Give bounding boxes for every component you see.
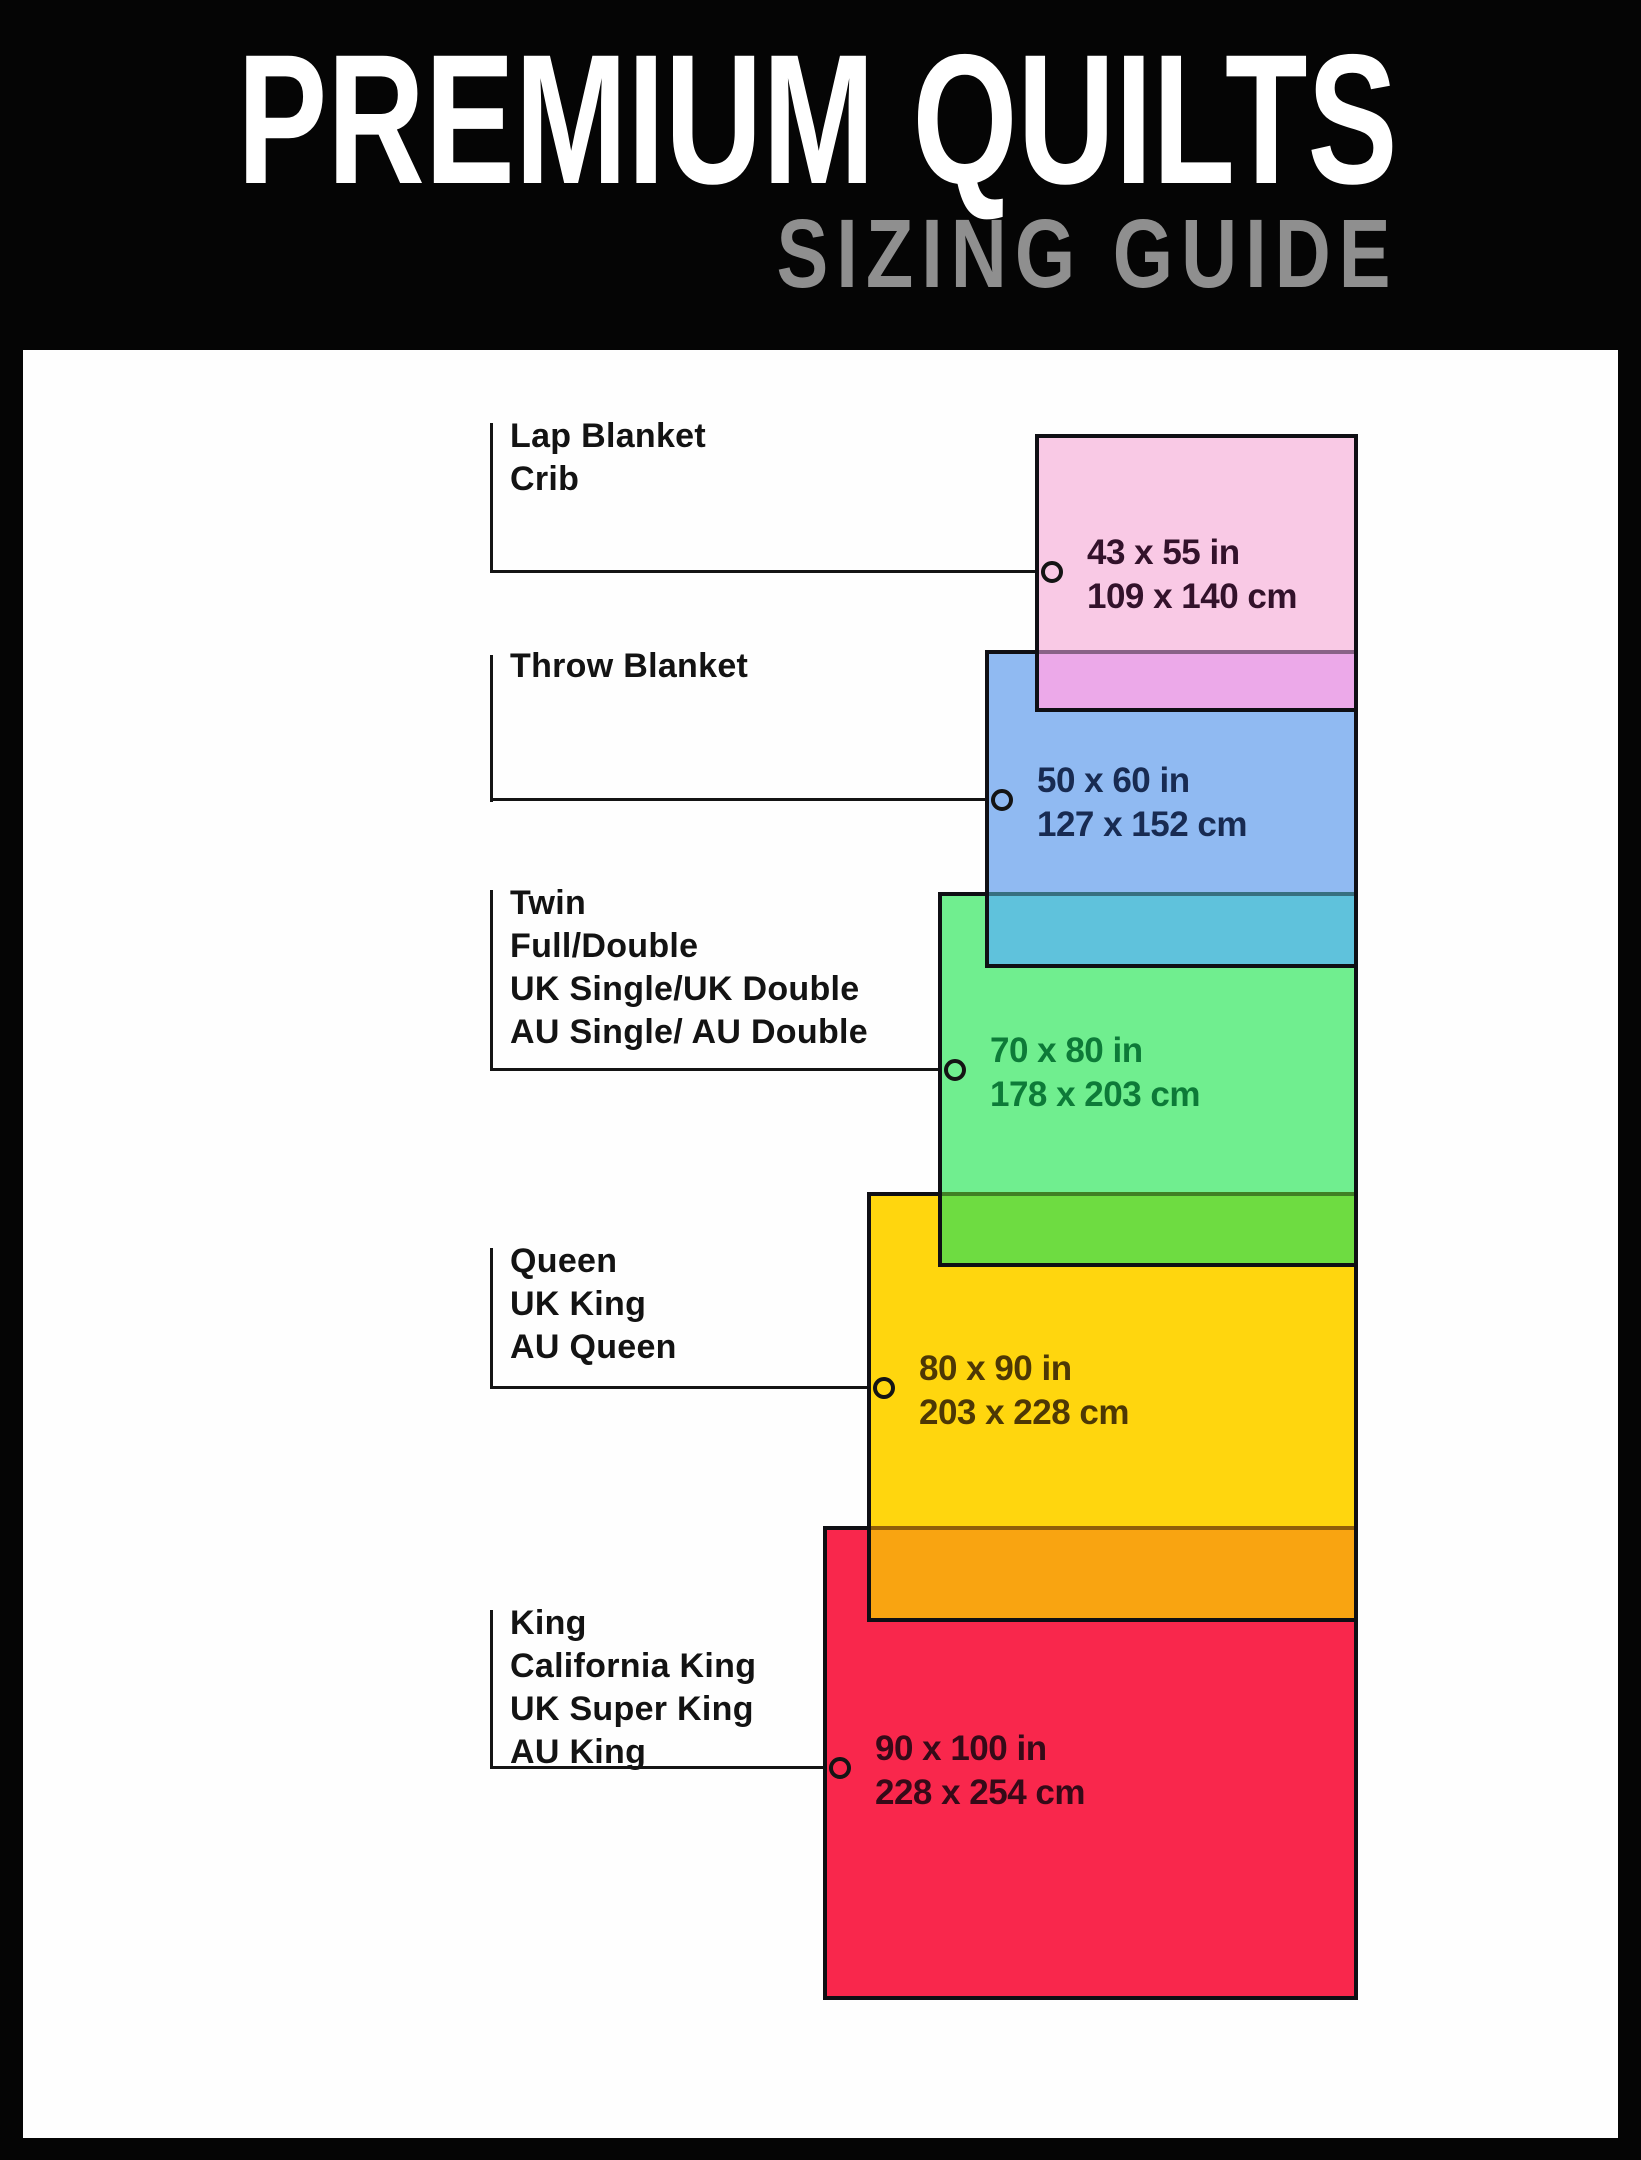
label-group-queen: Queen UK King AU Queen [510,1240,677,1369]
marker-dot-icon [1041,561,1063,583]
size-label: UK King [510,1283,677,1326]
size-label: Twin [510,882,868,925]
dimension-cm: 203 x 228 cm [919,1391,1129,1435]
dimension-text: 90 x 100 in 228 x 254 cm [875,1727,1085,1815]
overlap-strip [871,1526,1354,1618]
connector-line [490,570,1043,573]
dimension-cm: 228 x 254 cm [875,1771,1085,1815]
label-group-king: King California King UK Super King AU Ki… [510,1602,756,1774]
connector-line [490,798,993,801]
size-label: AU Queen [510,1326,677,1369]
content-panel [23,350,1618,2138]
dimension-cm: 109 x 140 cm [1087,575,1297,619]
connector-line [490,655,493,802]
dimension-inches: 90 x 100 in [875,1727,1085,1771]
connector-line [490,1068,946,1071]
size-label: Lap Blanket [510,415,706,458]
size-label: Full/Double [510,925,868,968]
dimension-cm: 178 x 203 cm [990,1073,1200,1117]
overlap-strip [989,892,1354,964]
size-label: UK Single/UK Double [510,968,868,1011]
size-label: Queen [510,1240,677,1283]
dimension-inches: 80 x 90 in [919,1347,1129,1391]
size-label: Crib [510,458,706,501]
overlap-strip [942,1192,1354,1263]
page-title: PREMIUM QUILTS [238,28,1398,213]
marker-dot-icon [991,789,1013,811]
dimension-inches: 43 x 55 in [1087,531,1297,575]
marker-dot-icon [944,1059,966,1081]
quilt-rect-lap-blanket: 43 x 55 in 109 x 140 cm [1035,434,1358,712]
dimension-text: 50 x 60 in 127 x 152 cm [1037,759,1247,847]
connector-line [490,1386,875,1389]
size-label: California King [510,1645,756,1688]
dimension-text: 43 x 55 in 109 x 140 cm [1087,531,1297,619]
size-label: Throw Blanket [510,645,748,688]
page-subtitle: SIZING GUIDE [776,205,1398,302]
size-label: King [510,1602,756,1645]
marker-dot-icon [873,1377,895,1399]
size-label: UK Super King [510,1688,756,1731]
dimension-inches: 50 x 60 in [1037,759,1247,803]
connector-line [490,1248,493,1389]
label-group-lap-blanket: Lap Blanket Crib [510,415,706,501]
dimension-inches: 70 x 80 in [990,1029,1200,1073]
connector-line [490,1610,493,1769]
dimension-text: 70 x 80 in 178 x 203 cm [990,1029,1200,1117]
connector-line [490,1766,831,1769]
dimension-cm: 127 x 152 cm [1037,803,1247,847]
overlap-strip [1039,650,1354,708]
size-label: AU Single/ AU Double [510,1011,868,1054]
dimension-text: 80 x 90 in 203 x 228 cm [919,1347,1129,1435]
connector-line [490,890,493,1071]
label-group-twin: Twin Full/Double UK Single/UK Double AU … [510,882,868,1054]
marker-dot-icon [829,1757,851,1779]
sizing-guide-poster: PREMIUM QUILTS SIZING GUIDE Lap Blanket … [0,0,1641,2160]
connector-line [490,423,493,573]
label-group-throw-blanket: Throw Blanket [510,645,748,688]
